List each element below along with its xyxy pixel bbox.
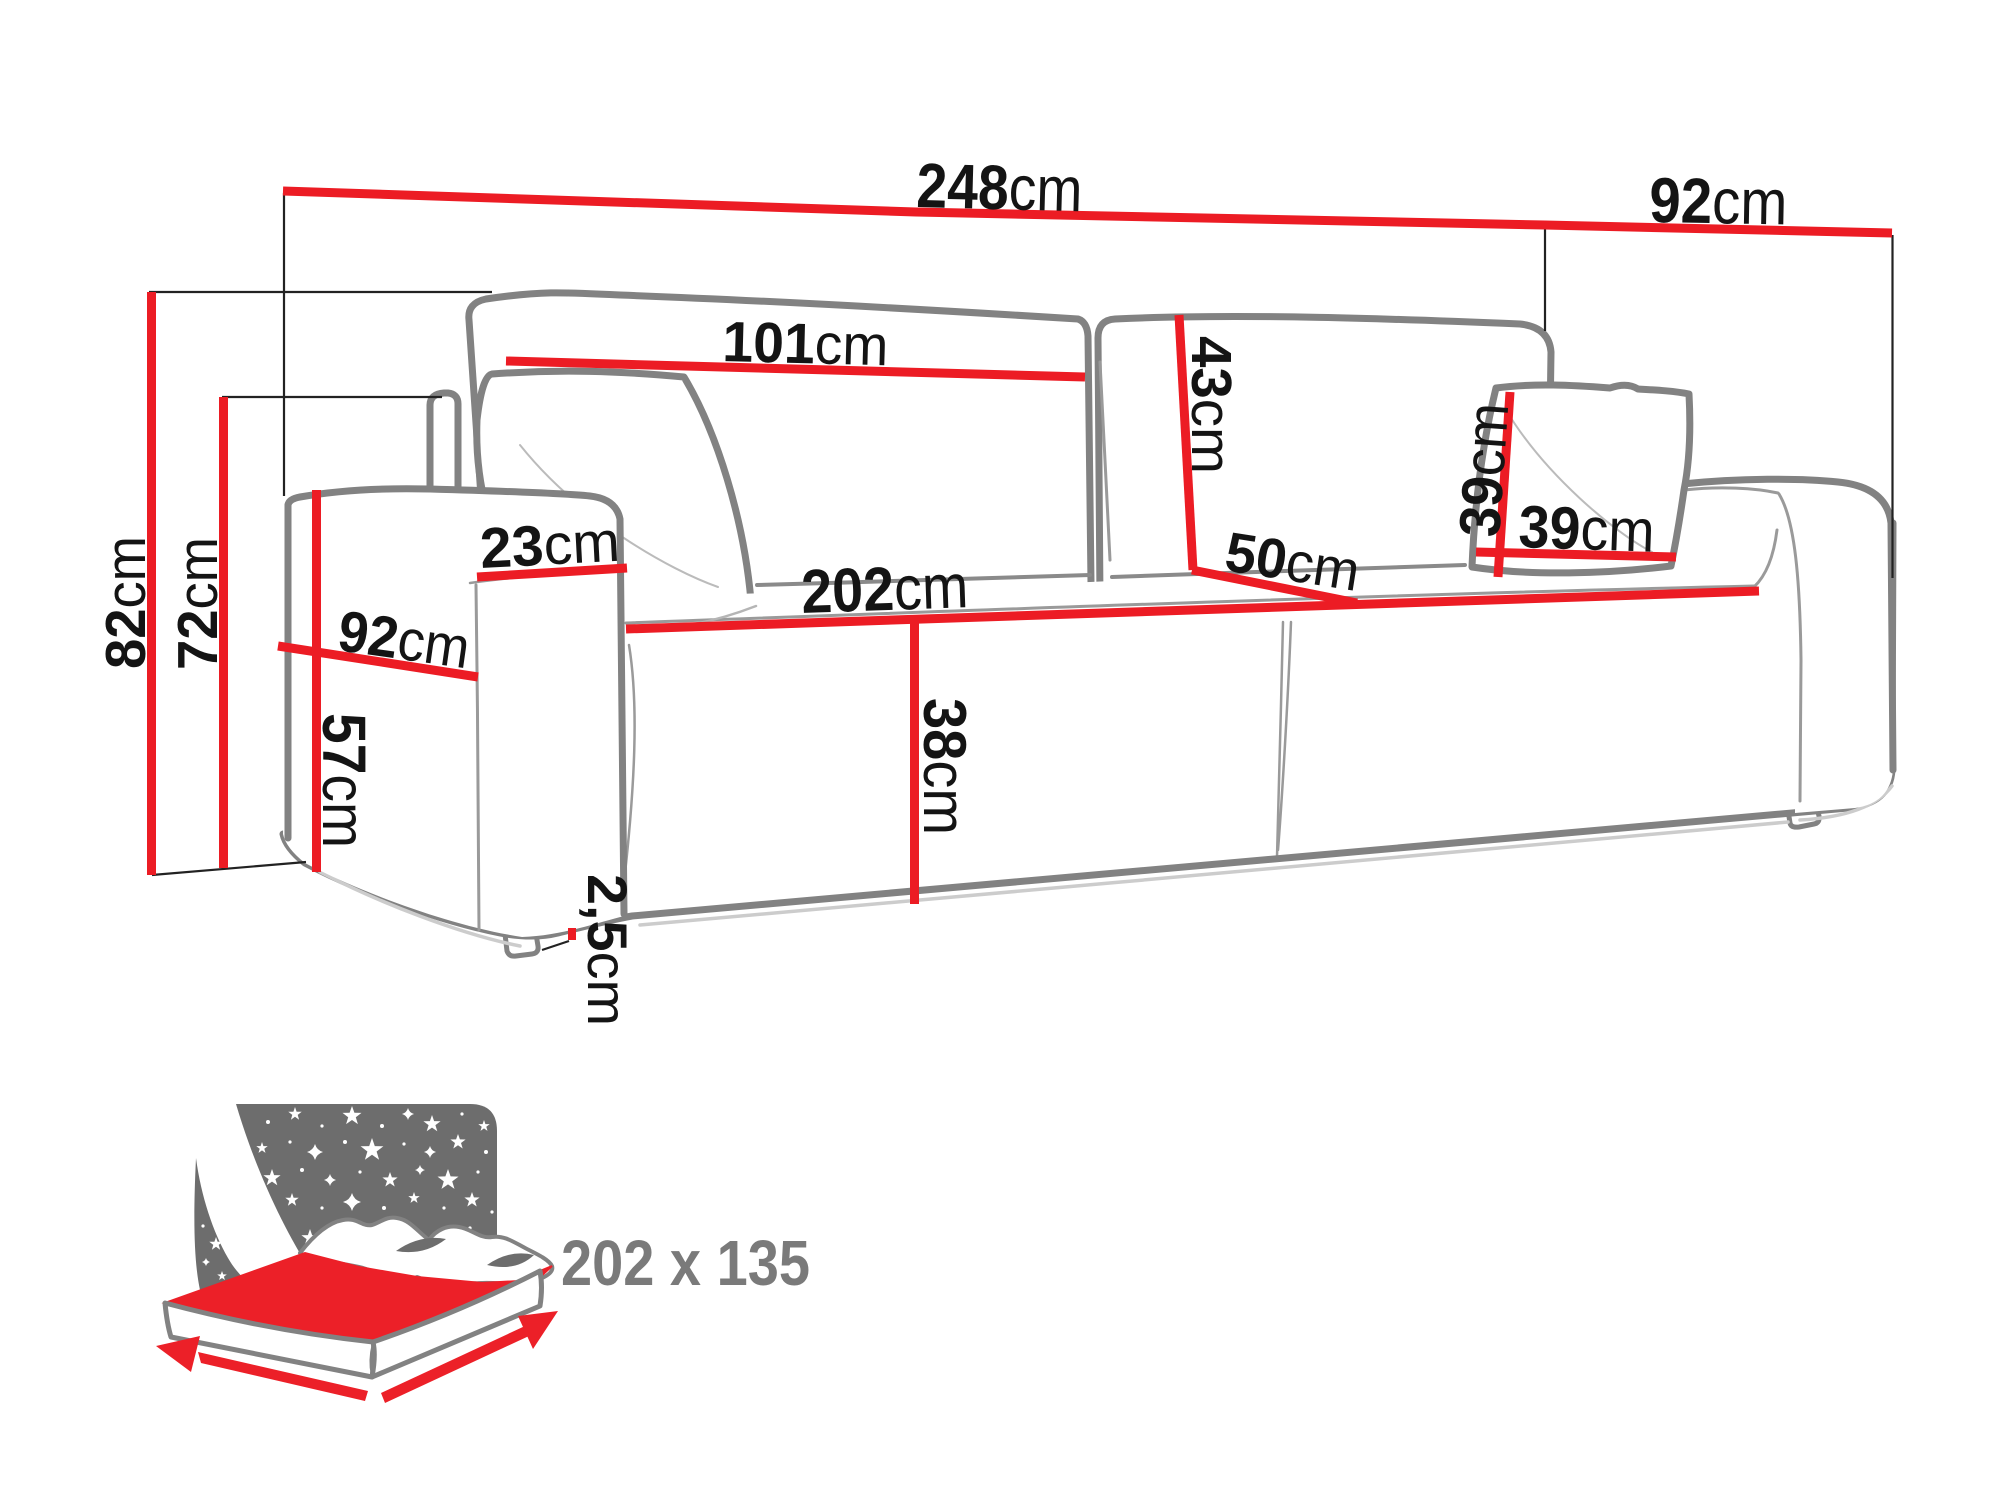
svg-text:23cm: 23cm [478, 510, 621, 581]
svg-text:202 x 135: 202 x 135 [561, 1227, 810, 1299]
svg-text:57cm: 57cm [310, 713, 378, 848]
svg-text:101cm: 101cm [722, 310, 890, 378]
svg-text:202cm: 202cm [800, 552, 969, 627]
svg-text:39cm: 39cm [1447, 401, 1521, 539]
svg-text:43cm: 43cm [1179, 336, 1243, 474]
svg-text:38cm: 38cm [911, 698, 978, 835]
svg-text:248cm: 248cm [916, 151, 1084, 225]
svg-text:92cm: 92cm [1649, 164, 1788, 238]
svg-text:82cm: 82cm [94, 536, 158, 669]
svg-text:2,5cm: 2,5cm [576, 874, 639, 1026]
svg-text:39cm: 39cm [1518, 493, 1656, 565]
svg-text:72cm: 72cm [166, 537, 230, 670]
